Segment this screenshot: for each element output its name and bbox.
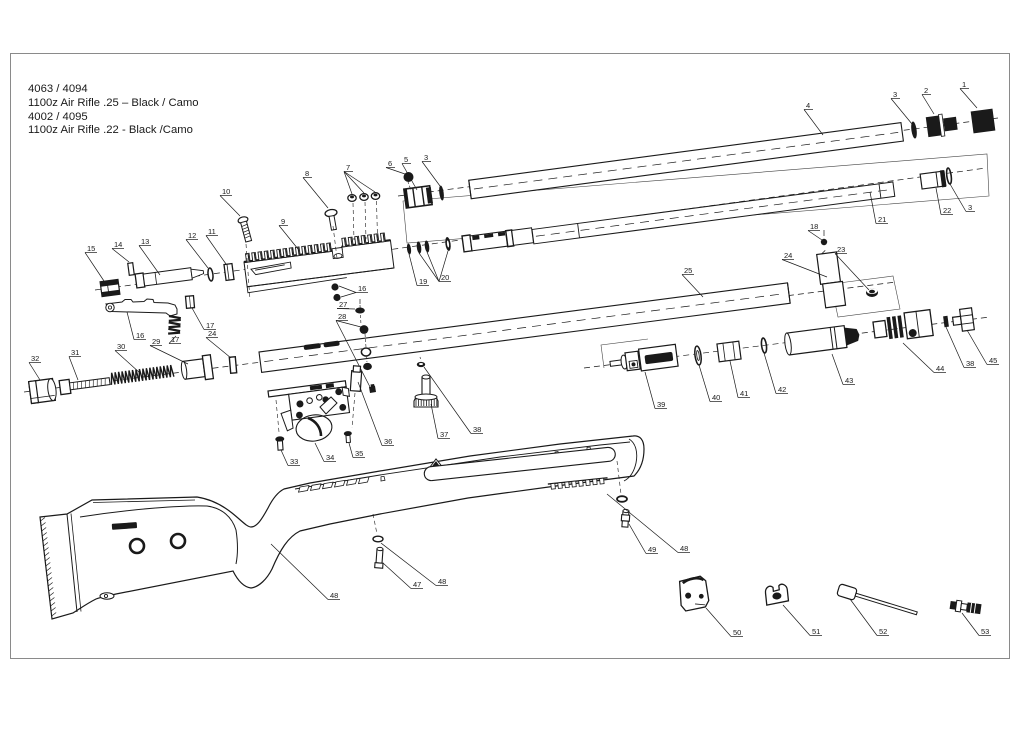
svg-text:18: 18 [810,222,818,231]
svg-text:15: 15 [87,244,95,253]
svg-text:34: 34 [326,453,334,462]
svg-text:16: 16 [358,284,366,293]
svg-text:6: 6 [388,159,392,168]
svg-text:50: 50 [733,628,741,637]
svg-text:17: 17 [171,335,179,344]
svg-text:48: 48 [438,577,446,586]
svg-text:10: 10 [222,187,230,196]
svg-text:9: 9 [281,217,285,226]
svg-text:27: 27 [339,300,347,309]
svg-text:22: 22 [943,206,951,215]
svg-text:29: 29 [152,337,160,346]
svg-text:23: 23 [837,245,845,254]
svg-text:45: 45 [989,356,997,365]
svg-text:31: 31 [71,348,79,357]
svg-text:48: 48 [680,544,688,553]
svg-text:11: 11 [208,227,216,236]
svg-text:1: 1 [962,80,966,89]
svg-text:3: 3 [893,90,897,99]
svg-text:52: 52 [879,627,887,636]
svg-text:51: 51 [812,627,820,636]
svg-text:53: 53 [981,627,989,636]
svg-text:24: 24 [208,329,216,338]
svg-text:28: 28 [338,312,346,321]
svg-text:43: 43 [845,376,853,385]
svg-text:20: 20 [441,273,449,282]
svg-text:1100z Air Rifle .22 - Black /C: 1100z Air Rifle .22 - Black /Camo [28,124,193,136]
svg-text:2: 2 [924,86,928,95]
svg-text:14: 14 [114,240,122,249]
svg-text:30: 30 [117,342,125,351]
svg-text:4: 4 [806,101,810,110]
svg-text:3: 3 [424,153,428,162]
svg-text:49: 49 [648,545,656,554]
svg-text:8: 8 [305,169,309,178]
svg-text:7: 7 [346,163,350,172]
svg-text:47: 47 [413,580,421,589]
svg-text:24: 24 [784,251,792,260]
svg-text:21: 21 [878,215,886,224]
svg-text:1100z Air Rifle .25 – Black /: 1100z Air Rifle .25 – Black / Camo [28,97,199,109]
svg-text:12: 12 [188,231,196,240]
svg-text:25: 25 [684,266,692,275]
svg-text:38: 38 [966,359,974,368]
svg-text:40: 40 [712,393,720,402]
svg-text:35: 35 [355,449,363,458]
svg-text:44: 44 [936,364,944,373]
svg-text:5: 5 [404,155,408,164]
svg-text:48: 48 [330,591,338,600]
svg-text:38: 38 [473,425,481,434]
svg-text:13: 13 [141,237,149,246]
svg-text:37: 37 [440,430,448,439]
svg-text:3: 3 [968,203,972,212]
svg-text:39: 39 [657,400,665,409]
svg-text:4063 / 4094: 4063 / 4094 [28,83,88,95]
svg-text:16: 16 [136,331,144,340]
svg-text:42: 42 [778,385,786,394]
svg-text:32: 32 [31,354,39,363]
svg-text:36: 36 [384,437,392,446]
svg-text:41: 41 [740,389,748,398]
svg-text:19: 19 [419,277,427,286]
svg-text:33: 33 [290,457,298,466]
svg-text:4002 / 4095: 4002 / 4095 [28,111,88,123]
